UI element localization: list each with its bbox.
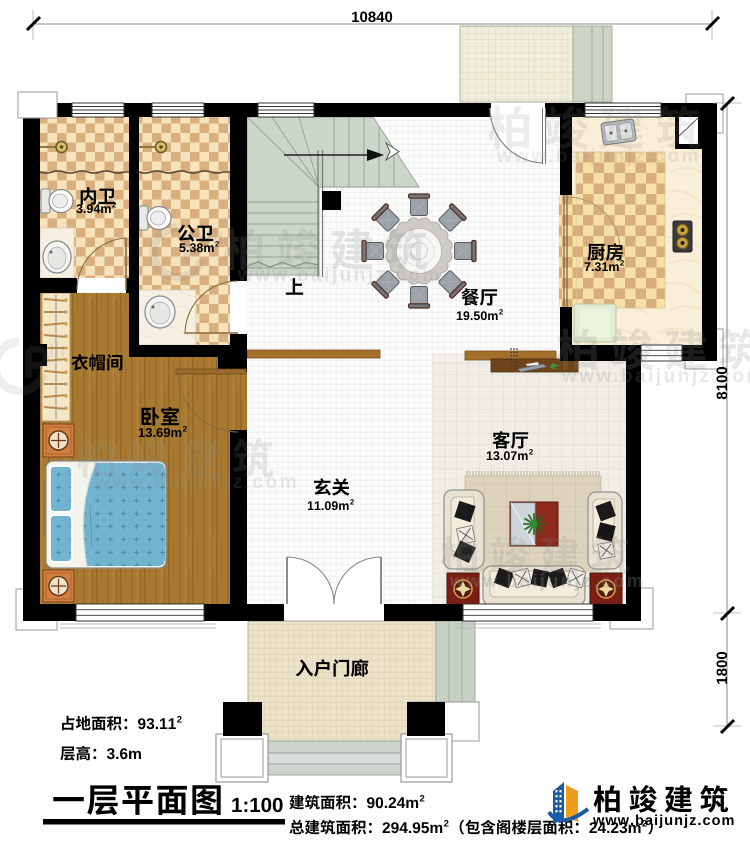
svg-text:www.baijunjz.com: www.baijunjz.com <box>94 472 299 493</box>
svg-text:www.baijunjz.com: www.baijunjz.com <box>496 146 701 167</box>
svg-text:www.baijunjz.com: www.baijunjz.com <box>449 571 645 591</box>
svg-text:www.baijunjz.com: www.baijunjz.com <box>237 265 442 286</box>
